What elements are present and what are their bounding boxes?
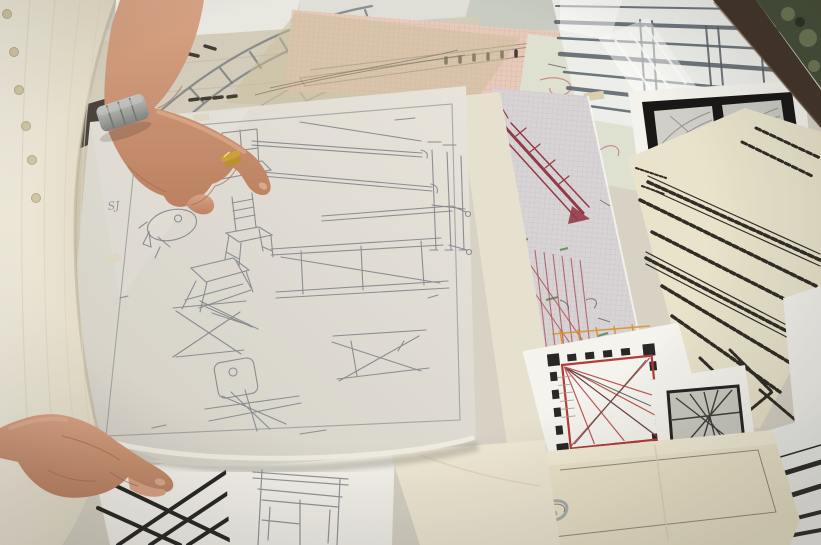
warm-tone-overlay (0, 0, 821, 545)
photo-of-architect-reviewing-drawings: SJ (0, 0, 821, 545)
photo-canvas: SJ (0, 0, 821, 545)
